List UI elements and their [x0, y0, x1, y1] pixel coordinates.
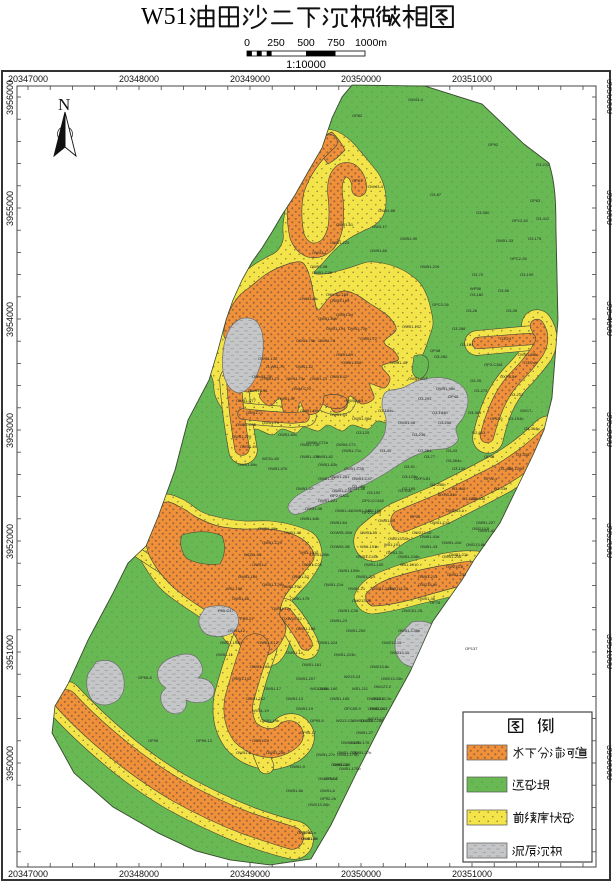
svg-text:O3-236b: O3-236b [430, 482, 446, 487]
svg-text:OP40: OP40 [448, 394, 459, 399]
svg-text:OW51-C36: OW51-C36 [312, 270, 333, 275]
svg-text:3953000: 3953000 [5, 413, 15, 448]
svg-text:OW51-98d: OW51-98d [352, 416, 371, 421]
svg-text:OW51-89: OW51-89 [336, 352, 354, 357]
svg-text:O3-43: O3-43 [446, 448, 458, 453]
svg-text:OW51-200: OW51-200 [346, 628, 366, 633]
svg-text:OW43-4: OW43-4 [368, 184, 384, 189]
svg-text:20350000: 20350000 [341, 869, 381, 879]
svg-text:OW51-98c: OW51-98c [436, 386, 455, 391]
svg-text:WQ51-55: WQ51-55 [244, 552, 262, 557]
svg-text:O3-184: O3-184 [460, 342, 474, 347]
svg-text:OW3-17: OW3-17 [372, 224, 388, 229]
svg-text:OW51-73c: OW51-73c [286, 376, 305, 381]
svg-text:OW51-49b: OW51-49b [258, 526, 278, 531]
svg-text:3952000: 3952000 [605, 523, 612, 558]
svg-text:OPx2-x: OPx2-x [484, 476, 497, 481]
svg-text:20349000: 20349000 [230, 869, 270, 879]
svg-text:O3-212: O3-212 [510, 392, 524, 397]
svg-text:OW213-1b: OW213-1b [372, 696, 392, 701]
svg-text:OP92: OP92 [488, 142, 499, 147]
svg-text:OW51-69: OW51-69 [240, 444, 258, 449]
svg-text:OP12-52: OP12-52 [512, 218, 529, 223]
svg-text:OW51-208: OW51-208 [342, 360, 362, 365]
svg-text:OW51-C28b: OW51-C28b [361, 718, 384, 723]
svg-text:O3-288: O3-288 [452, 326, 466, 331]
svg-text:OW51-13: OW51-13 [286, 696, 304, 701]
svg-text:O3-91: O3-91 [404, 464, 416, 469]
svg-text:OW51-161: OW51-161 [302, 662, 322, 667]
svg-text:OW51-72: OW51-72 [360, 336, 378, 341]
svg-text:OW51-227: OW51-227 [476, 520, 496, 525]
svg-text:OW51-C41b: OW51-C41b [356, 554, 379, 559]
svg-text:OW51-190: OW51-190 [364, 562, 384, 567]
svg-text:OW51-64b: OW51-64b [300, 516, 320, 521]
svg-text:OW127-2: OW127-2 [374, 684, 392, 689]
svg-text:3955000: 3955000 [5, 191, 15, 226]
svg-text:O-W51-79: O-W51-79 [266, 364, 285, 369]
svg-text:W51-211: W51-211 [352, 686, 369, 691]
svg-text:OW51-224b: OW51-224b [334, 652, 356, 657]
svg-text:O3-87: O3-87 [430, 192, 442, 197]
svg-text:O3-256: O3-256 [438, 420, 452, 425]
svg-text:3953000: 3953000 [605, 412, 612, 447]
svg-text:OW51-229: OW51-229 [232, 434, 252, 439]
svg-text:O3-41: O3-41 [380, 448, 392, 453]
svg-text:OXW51-12: OXW51-12 [282, 616, 303, 621]
svg-text:OW51-63: OW51-63 [346, 398, 364, 403]
svg-text:OW51-98: OW51-98 [310, 264, 328, 269]
svg-text:O3-126c: O3-126c [462, 496, 477, 501]
svg-text:OW51-176: OW51-176 [350, 740, 370, 745]
svg-text:W51-191c: W51-191c [300, 550, 318, 555]
svg-text:OW43-4: OW43-4 [408, 97, 424, 102]
svg-text:OW51-64: OW51-64 [330, 520, 348, 525]
svg-text:250: 250 [267, 37, 285, 49]
svg-text:OW51-19b: OW51-19b [260, 718, 280, 723]
svg-text:OW51-84b: OW51-84b [318, 316, 338, 321]
svg-text:500: 500 [297, 37, 315, 49]
svg-text:OW59-C71b: OW59-C71b [306, 440, 329, 445]
svg-text:O2-613: O2-613 [472, 430, 486, 435]
svg-text:OW51-72b: OW51-72b [348, 326, 368, 331]
svg-text:OW213-8: OW213-8 [472, 526, 490, 531]
svg-text:OW215-8c: OW215-8c [418, 582, 437, 587]
svg-text:OW51-79b: OW51-79b [296, 338, 316, 343]
svg-text:O3-279: O3-279 [474, 388, 488, 393]
svg-text:OW51-C26: OW51-C26 [302, 562, 323, 567]
svg-text:O3-184c: O3-184c [378, 408, 393, 413]
svg-text:3956000: 3956000 [605, 79, 612, 114]
svg-text:W51-198: W51-198 [226, 586, 243, 591]
svg-text:0: 0 [244, 37, 250, 49]
svg-text:OW51-79: OW51-79 [318, 338, 336, 343]
svg-text:OW51-5b: OW51-5b [301, 836, 319, 841]
svg-text:O3-364: O3-364 [468, 410, 482, 415]
svg-text:O3-77: O3-77 [424, 454, 436, 459]
svg-text:OW43-1: OW43-1 [312, 250, 328, 255]
svg-text:PB5-21: PB5-21 [240, 616, 254, 621]
svg-text:OW51-98: OW51-98 [398, 420, 416, 425]
svg-text:OW213-15b: OW213-15b [381, 676, 403, 681]
svg-text:OP78: OP78 [430, 600, 441, 605]
svg-text:20351000: 20351000 [452, 74, 492, 84]
svg-text:OW51-44: OW51-44 [335, 508, 353, 513]
svg-text:OW51-41b: OW51-41b [442, 540, 462, 545]
svg-text:OW51-90: OW51-90 [400, 236, 418, 241]
svg-text:OW51-165: OW51-165 [330, 696, 350, 701]
svg-text:OW51-198: OW51-198 [248, 388, 268, 393]
svg-text:OW51-25b: OW51-25b [266, 750, 286, 755]
svg-text:O3-70: O3-70 [472, 272, 484, 277]
svg-text:O3-91b: O3-91b [398, 488, 412, 493]
svg-text:OW51-57: OW51-57 [296, 486, 314, 491]
svg-text:OW51-194: OW51-194 [326, 326, 346, 331]
svg-text:3950000: 3950000 [605, 745, 612, 780]
svg-text:OW51-221: OW51-221 [318, 498, 338, 503]
svg-text:OXW51-55b: OXW51-55b [330, 530, 353, 535]
svg-text:OW51-60b: OW51-60b [300, 408, 320, 413]
svg-text:O3-26: O3-26 [466, 308, 478, 313]
svg-text:OW51-217: OW51-217 [408, 376, 428, 381]
svg-text:OP95-9: OP95-9 [310, 718, 325, 723]
svg-text:OW51-188: OW51-188 [296, 626, 316, 631]
svg-text:O3-262: O3-262 [434, 354, 448, 359]
svg-text:OW51-C36b: OW51-C36b [398, 628, 421, 633]
svg-text:O3-126b: O3-126b [508, 466, 524, 471]
svg-text:OW59-C71: OW59-C71 [336, 442, 357, 447]
svg-text:3951000: 3951000 [5, 635, 15, 670]
svg-text:OW51-6b: OW51-6b [286, 788, 304, 793]
svg-text:OW51-23: OW51-23 [330, 618, 348, 623]
svg-text:OW51-207: OW51-207 [296, 676, 316, 681]
svg-text:OP100: OP100 [490, 416, 503, 421]
svg-text:OW43-1b: OW43-1b [300, 296, 318, 301]
svg-text:OW51-33: OW51-33 [496, 238, 514, 243]
svg-text:OW51-6: OW51-6 [320, 788, 336, 793]
svg-text:OW213-26b: OW213-26b [308, 802, 330, 807]
svg-text:OW51-216b: OW51-216b [398, 554, 420, 559]
svg-text:O3-24b: O3-24b [524, 360, 538, 365]
svg-text:OW51-212: OW51-212 [246, 696, 266, 701]
svg-text:OW51-C47: OW51-C47 [352, 476, 373, 481]
svg-text:OP95: OP95 [148, 738, 159, 743]
svg-text:OW53-169: OW53-169 [330, 298, 350, 303]
svg-text:1000m: 1000m [355, 37, 387, 49]
svg-text:OP95-12: OP95-12 [196, 738, 213, 743]
svg-text:OW213-15: OW213-15 [382, 640, 402, 645]
svg-text:OW51-198b: OW51-198b [220, 640, 242, 645]
svg-text:OW51-84: OW51-84 [336, 312, 354, 317]
svg-text:P85-C17: P85-C17 [218, 608, 235, 613]
svg-text:OW51-21d: OW51-21d [324, 582, 343, 587]
svg-text:W51: W51 [141, 4, 188, 30]
svg-text:OW213-10b: OW213-10b [388, 536, 410, 541]
svg-text:OW51-169: OW51-169 [238, 574, 258, 579]
svg-text:OW51-42: OW51-42 [330, 374, 348, 379]
svg-text:O3-236: O3-236 [412, 432, 426, 437]
svg-text:O3-264: O3-264 [418, 448, 432, 453]
svg-text:OW51-27: OW51-27 [356, 730, 374, 735]
svg-text:OW51-60c: OW51-60c [278, 432, 297, 437]
svg-text:3955000: 3955000 [605, 190, 612, 225]
svg-text:OW51-C55: OW51-C55 [236, 422, 257, 427]
svg-text:OW51-73: OW51-73 [310, 376, 328, 381]
svg-text:OW51-C12: OW51-C12 [258, 640, 279, 645]
svg-text:OW51-66: OW51-66 [232, 596, 250, 601]
svg-text:OW213-11: OW213-11 [390, 650, 410, 655]
svg-text:OW51-69c: OW51-69c [238, 462, 257, 467]
svg-text:OP24: OP24 [410, 514, 421, 519]
svg-text:OW51-71c: OW51-71c [342, 448, 361, 453]
svg-text:OP3-C381: OP3-C381 [484, 362, 504, 367]
svg-text:O3-182: O3-182 [470, 292, 484, 297]
svg-text:OW51-F52: OW51-F52 [282, 584, 302, 589]
svg-text:3952000: 3952000 [5, 524, 15, 559]
svg-text:OW51-2: OW51-2 [252, 562, 268, 567]
svg-text:OW51-21: OW51-21 [348, 586, 366, 591]
svg-text:OW51-98b: OW51-98b [518, 352, 538, 357]
svg-text:750: 750 [327, 37, 345, 49]
svg-text:20351000: 20351000 [452, 869, 492, 879]
svg-text:OW51-C46: OW51-C46 [332, 488, 353, 493]
svg-text:OW51-12x: OW51-12x [272, 606, 291, 611]
svg-text:N: N [58, 95, 70, 114]
svg-text:WX51-19: WX51-19 [252, 708, 269, 713]
svg-text:OP95-8: OP95-8 [138, 675, 153, 680]
svg-text:OXP3-81b: OXP3-81b [438, 492, 457, 497]
svg-text:OW51-172: OW51-172 [258, 356, 278, 361]
svg-text:O3-24: O3-24 [500, 336, 512, 341]
svg-text:OW51-75: OW51-75 [262, 420, 280, 425]
svg-text:OW51-C36: OW51-C36 [338, 608, 359, 613]
svg-text:OW51-54b: OW51-54b [352, 508, 372, 513]
svg-text:OW51-41d: OW51-41d [420, 534, 439, 539]
svg-text:OW51-22: OW51-22 [296, 364, 314, 369]
svg-text:OW51-60: OW51-60 [370, 248, 388, 253]
svg-text:OP82: OP82 [352, 113, 363, 118]
svg-text:OW51-215b: OW51-215b [372, 586, 394, 591]
svg-text:OP92-2b: OP92-2b [320, 796, 337, 801]
svg-text:OP137: OP137 [465, 646, 478, 651]
svg-text:OW51-62b: OW51-62b [318, 462, 338, 467]
svg-text:OW51-61: OW51-61 [336, 222, 354, 227]
svg-text:O3-364c: O3-364c [446, 458, 461, 463]
svg-text:OW51-176b: OW51-176b [337, 752, 359, 757]
svg-text:OW51-19: OW51-19 [296, 706, 314, 711]
svg-text:OP81: OP81 [352, 178, 363, 183]
svg-text:O3-175: O3-175 [528, 236, 542, 241]
svg-text:OW51-224: OW51-224 [318, 640, 338, 645]
svg-text:OW51-11: OW51-11 [216, 652, 234, 657]
svg-text:OW51-48: OW51-48 [305, 506, 323, 511]
svg-text:OW51-190b: OW51-190b [338, 568, 360, 573]
svg-text:OW51-1x: OW51-1x [286, 650, 303, 655]
svg-text:OP83: OP83 [530, 198, 541, 203]
svg-text:OW51-179b: OW51-179b [262, 582, 284, 587]
svg-text:OW51-88: OW51-88 [378, 208, 396, 213]
svg-text:O3-211: O3-211 [536, 162, 550, 167]
svg-text:OW51-55: OW51-55 [360, 530, 378, 535]
svg-text:O3-412: O3-412 [536, 216, 550, 221]
svg-text:3954000: 3954000 [5, 302, 15, 337]
svg-text:W213-12b: W213-12b [336, 718, 355, 723]
svg-text:OW51-9: OW51-9 [290, 764, 306, 769]
svg-text:3956000: 3956000 [5, 80, 15, 115]
svg-text:O3-125: O3-125 [356, 430, 370, 435]
svg-text:20348000: 20348000 [119, 74, 159, 84]
svg-text:O3-35: O3-35 [506, 308, 518, 313]
svg-text:OXP3-5x: OXP3-5x [500, 374, 516, 379]
svg-text:OWC51-169: OWC51-169 [326, 292, 349, 297]
svg-text:OPC85-9: OPC85-9 [344, 706, 361, 711]
svg-text:OP92-2: OP92-2 [324, 776, 339, 781]
svg-text:O3-448: O3-448 [452, 486, 466, 491]
svg-text:OW51-27c: OW51-27c [316, 752, 335, 757]
svg-text:OW51-179: OW51-179 [290, 596, 310, 601]
svg-text:OW51-52: OW51-52 [292, 574, 310, 579]
svg-text:OW51-21b: OW51-21b [449, 552, 469, 557]
svg-text:OW51-54: OW51-54 [378, 518, 396, 523]
svg-text:O3-125b: O3-125b [402, 474, 418, 479]
svg-text:OP95-17: OP95-17 [300, 730, 317, 735]
svg-text:OPB2-x: OPB2-x [302, 830, 316, 835]
svg-text:WP58: WP58 [470, 286, 482, 291]
svg-text:W213-13: W213-13 [344, 674, 361, 679]
svg-text:OW51-47b: OW51-47b [300, 454, 320, 459]
svg-text:OP38: OP38 [484, 454, 495, 459]
svg-text:20350000: 20350000 [341, 74, 381, 84]
svg-text:OWx51-75: OWx51-75 [252, 374, 272, 379]
svg-text:O3-56: O3-56 [498, 288, 510, 293]
svg-text:OW51-94: OW51-94 [330, 412, 348, 417]
svg-text:OW51-102: OW51-102 [402, 324, 422, 329]
svg-text:OW51-C35: OW51-C35 [344, 466, 365, 471]
svg-text:OPC2-26: OPC2-26 [510, 256, 527, 261]
svg-text:O3-39: O3-39 [470, 378, 482, 383]
svg-text:OW51-8: OW51-8 [236, 750, 252, 755]
svg-text:OW51-C29: OW51-C29 [262, 540, 283, 545]
svg-text:3950000: 3950000 [5, 746, 15, 781]
svg-text:OW213-3: OW213-3 [370, 706, 388, 711]
svg-text:WC51-69: WC51-69 [262, 456, 280, 461]
svg-text:3954000: 3954000 [605, 301, 612, 336]
svg-text:OW51-C41: OW51-C41 [430, 520, 451, 525]
svg-text:O3-194b: O3-194b [508, 416, 524, 421]
svg-text:OWQ13-6: OWQ13-6 [446, 508, 465, 513]
svg-text:OP2-CC440: OP2-CC440 [362, 498, 385, 503]
svg-text:OW51-213: OW51-213 [418, 574, 438, 579]
svg-text:OW51-215: OW51-215 [356, 574, 376, 579]
svg-text:OPC3-26: OPC3-26 [432, 302, 449, 307]
svg-text:3951000: 3951000 [605, 634, 612, 669]
svg-text:OW51-49: OW51-49 [284, 530, 302, 535]
svg-text:OW17-: OW17- [520, 408, 533, 413]
svg-text:O3-199: O3-199 [520, 272, 534, 277]
svg-text:OW51-43: OW51-43 [420, 544, 438, 549]
svg-text:OW51-170b: OW51-170b [339, 766, 361, 771]
svg-text:OP48: OP48 [430, 348, 441, 353]
svg-text:OW51-47: OW51-47 [318, 476, 336, 481]
svg-text:O3-338: O3-338 [516, 452, 530, 457]
svg-text:OW51-C77: OW51-C77 [236, 398, 257, 403]
svg-text:OW51-17: OW51-17 [264, 686, 282, 691]
svg-text:OW51-188c: OW51-188c [250, 664, 271, 669]
svg-text:OXW51-55: OXW51-55 [330, 544, 351, 549]
svg-text:OWM-C70: OWM-C70 [292, 386, 312, 391]
svg-text:W51-191: W51-191 [384, 542, 401, 547]
svg-text:OW51-45: OW51-45 [390, 360, 408, 365]
svg-text:OW51-232: OW51-232 [447, 572, 467, 577]
svg-text:20349000: 20349000 [230, 74, 270, 84]
svg-text:O3-350: O3-350 [476, 210, 490, 215]
svg-text:OW51-25: OW51-25 [252, 738, 270, 743]
svg-text:O3-184b: O3-184b [432, 410, 448, 415]
svg-text:OW213-8c: OW213-8c [370, 664, 389, 669]
svg-text:O3-291: O3-291 [418, 396, 432, 401]
svg-text:20347000: 20347000 [8, 869, 48, 879]
svg-text:W51-1910: W51-1910 [400, 562, 419, 567]
svg-text:OW51-225: OW51-225 [330, 240, 350, 245]
svg-text:OW51-71: OW51-71 [246, 410, 264, 415]
svg-text:W51-211b: W51-211b [310, 686, 329, 691]
svg-text:OW213-26: OW213-26 [352, 598, 372, 603]
svg-text:OW215-8: OW215-8 [446, 564, 464, 569]
svg-text:W51-191b: W51-191b [360, 544, 379, 549]
svg-text:OW51-102: OW51-102 [232, 676, 252, 681]
svg-text:20348000: 20348000 [119, 869, 159, 879]
svg-text:O3-192: O3-192 [367, 490, 381, 495]
svg-text:1:10000: 1:10000 [286, 59, 326, 71]
svg-text:O3-43c: O3-43c [494, 486, 507, 491]
svg-text:OWC51-25: OWC51-25 [402, 608, 423, 613]
svg-text:O3-126: O3-126 [452, 466, 466, 471]
svg-text:OW51-219: OW51-219 [420, 264, 440, 269]
svg-text:OW51-4F: OW51-4F [278, 396, 296, 401]
svg-text:O3-364b: O3-364b [524, 426, 540, 431]
svg-text:OW51-57b: OW51-57b [268, 466, 288, 471]
svg-text:OW51-12: OW51-12 [228, 628, 246, 633]
svg-text:OW213-8b: OW213-8b [466, 542, 486, 547]
